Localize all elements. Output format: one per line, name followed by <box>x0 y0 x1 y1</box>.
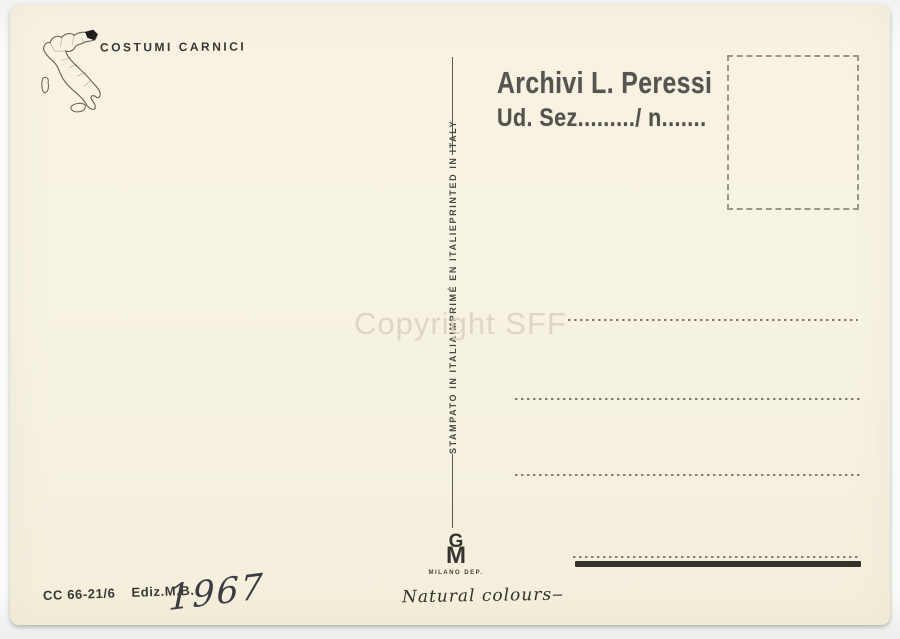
logo-city-label: MILANO DEP. <box>428 570 483 576</box>
address-line-2 <box>515 398 860 400</box>
address-line-3 <box>515 474 860 476</box>
address-line-4 <box>573 556 858 558</box>
script-flourish: ‒ <box>552 585 564 605</box>
postcard-title: COSTUMI CARNICI <box>100 39 246 54</box>
archive-stamp-name: Archivi L. Peressi <box>497 65 712 101</box>
address-line-1 <box>568 319 858 321</box>
natural-colours-script: Natural colours‒ <box>402 585 564 608</box>
gm-publisher-logo: G M MILANO DEP. <box>428 532 483 576</box>
copyright-watermark: Copyright SFF <box>354 306 567 342</box>
printed-in-english: PRINTED IN ITALY <box>448 120 458 224</box>
monogram-m: M <box>428 544 483 568</box>
catalog-code: CC 66-21/6 <box>43 585 116 603</box>
postcard-back: COSTUMI CARNICI STAMPATO IN ITALIA IMPRI… <box>10 5 890 625</box>
printed-in-italian: STAMPATO IN ITALIA <box>448 335 458 454</box>
divider-line-bottom <box>452 454 453 528</box>
postage-stamp-box <box>727 55 859 210</box>
handwritten-year: 1967 <box>168 567 265 619</box>
printed-in-italy-text: STAMPATO IN ITALIA IMPRIMÉ EN ITALIE PRI… <box>448 154 458 454</box>
italy-map-icon <box>30 26 108 118</box>
archive-stamp-ref: Ud. Sez........./ n....... <box>497 104 706 133</box>
script-text: Natural colours <box>402 585 552 608</box>
address-underline-bar <box>575 561 861 567</box>
